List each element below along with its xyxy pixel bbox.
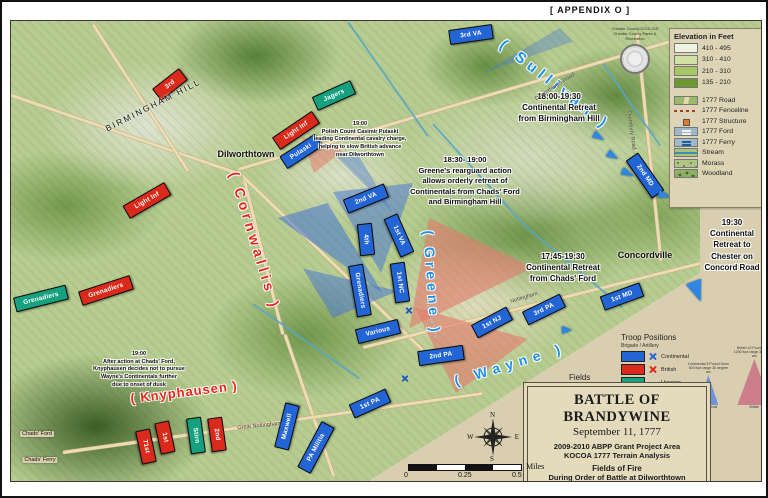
fire-triangle-label: British <box>733 405 762 409</box>
symbol-label: 1777 Road <box>702 97 735 104</box>
annotation-line: from Chads' Ford <box>503 273 623 284</box>
symbol-label: 1777 Ferry <box>702 139 735 146</box>
place-label: Chads' Ford <box>20 431 54 437</box>
map-theme: Fields of Fire <box>528 464 706 473</box>
map-annotation: 19:00Polish Count Casimir Pulaskileading… <box>300 121 420 159</box>
county-seal: Chester County DCIS-GIS Chester County P… <box>609 26 661 74</box>
fields-of-fire-legend-item: British 12 Pound Guns 1200 foot range 30… <box>733 346 762 409</box>
fence-swatch-icon <box>674 106 698 115</box>
annotation-line: due to onset of dusk <box>73 382 205 390</box>
scale-tick-label: 0.25 <box>458 472 472 479</box>
scale-bar-segments <box>408 464 522 471</box>
elevation-range-label: 135 - 210 <box>702 79 731 86</box>
elevation-range-label: 210 - 310 <box>702 68 731 75</box>
annotation-line: Continentals from Chads' Ford <box>390 187 540 198</box>
symbol-legend-row: 1777 Ford <box>674 127 762 136</box>
place-label: Concordville <box>618 250 673 260</box>
annotation-line: Wayne's Continentals further <box>73 374 205 382</box>
annotation-line: and Birmingham Hill <box>390 197 540 208</box>
appendix-header: [ APPENDIX O ] <box>550 5 630 15</box>
elevation-range-label: 310 - 410 <box>702 56 731 63</box>
symbols-legend: 1777 Road1777 Fenceline1777 Structure177… <box>674 96 762 179</box>
annotation-line: near Dilworthtown <box>300 152 420 160</box>
elevation-swatch <box>674 43 698 53</box>
symbol-label: Morass <box>702 160 724 167</box>
morass-swatch-icon <box>674 159 698 168</box>
annotation-line: Continental <box>696 228 762 239</box>
annotation-line: helping to slow British advance <box>300 144 420 152</box>
fire-triangle-icon <box>737 359 762 405</box>
map-annotation: 19:30ContinentalRetreat toChester onConc… <box>696 217 762 273</box>
annotation-line: Continental Retreat <box>503 262 623 273</box>
legend-title: Elevation in Feet <box>674 32 762 41</box>
ford-swatch-icon <box>674 127 698 136</box>
place-label: Dilworthtown <box>218 149 275 159</box>
annotation-line: Knyphausen decides not to pursue <box>73 366 205 374</box>
ferry-swatch-icon <box>674 138 698 147</box>
fields-of-fire-caption: Continental 3 Pound Guns 600 foot range … <box>687 362 729 374</box>
symbol-legend-row: 1777 Ferry <box>674 138 762 147</box>
symbol-label: 1777 Structure <box>702 118 747 125</box>
symbol-legend-row: Stream <box>674 148 762 157</box>
map-title-block: BATTLE OF BRANDYWINE September 11, 1777 … <box>527 386 707 482</box>
elevation-range-label: 410 - 495 <box>702 45 731 52</box>
fof-title-line: Fields <box>569 373 590 383</box>
elevation-swatch <box>674 55 698 65</box>
map-title: BATTLE OF BRANDYWINE <box>528 392 706 426</box>
seal-emblem-icon <box>620 44 650 74</box>
scale-bar-unit: Miles <box>526 462 544 471</box>
compass-star-icon <box>473 417 513 457</box>
map-theme-line: During Order of Battle at Dilworthtown <box>528 473 706 482</box>
woodland-swatch-icon <box>674 169 698 178</box>
project-line: 2009-2010 ABPP Grant Project Area <box>528 442 706 451</box>
map-annotation: 18:30- 19:00Greene's rearguard actionall… <box>390 155 540 208</box>
scale-tick-label: 0.5 <box>512 472 522 479</box>
symbol-legend-row: 1777 Structure <box>674 117 762 126</box>
symbol-label: Stream <box>702 149 724 156</box>
symbol-legend-row: Morass <box>674 159 762 168</box>
annotation-line: leading Continental cavalry charge, <box>300 136 420 144</box>
map-subtitle: September 11, 1777 <box>528 426 706 438</box>
elevation-legend-row: 410 - 495 <box>674 43 762 53</box>
compass-east: E <box>515 433 519 441</box>
map-annotation: 19:00After action at Chads' Ford,Knyphau… <box>73 351 205 389</box>
artillery-icon <box>405 306 414 314</box>
elevation-legend-row: 210 - 310 <box>674 66 762 76</box>
map-annotation: 17:45-19:30Continental Retreatfrom Chads… <box>503 251 623 285</box>
place-label: Chads' Ferry <box>22 457 57 463</box>
annotation-line: 19:00 <box>73 351 205 359</box>
annotation-line: allows orderly retreat of <box>390 176 540 187</box>
scale-tick-label: 0 <box>404 472 408 479</box>
project-line: KOCOA 1777 Terrain Analysis <box>528 451 706 460</box>
annotation-line: Retreat to <box>696 239 762 250</box>
elevation-legend-row: 310 - 410 <box>674 55 762 65</box>
elevation-legend-row: 135 - 210 <box>674 78 762 88</box>
symbol-label: 1777 Ford <box>702 128 733 135</box>
annotation-line: 18:00-19:30 <box>489 91 629 102</box>
annotation-line: Concord Road <box>696 262 762 273</box>
compass-rose: N S E W <box>469 413 517 461</box>
troop-legend-title: Troop Positions <box>621 333 733 342</box>
symbol-legend-row: Woodland <box>674 169 762 178</box>
map-legend-panel: Elevation in Feet 410 - 495310 - 410210 … <box>669 28 762 208</box>
symbol-label: Woodland <box>702 170 732 177</box>
symbol-label: 1777 Fenceline <box>702 107 748 114</box>
retreat-arrow-icon <box>562 326 572 334</box>
annotation-line: 17:45-19:30 <box>503 251 623 262</box>
stream-swatch-icon <box>674 148 698 157</box>
annotation-line: Chester on <box>696 251 762 262</box>
seal-text: Chester County Parks & Recreation <box>609 31 661 41</box>
annotation-line: 19:30 <box>696 217 762 228</box>
symbol-legend-row: 1777 Road <box>674 96 762 105</box>
scale-bar: 00.250.5 Miles <box>408 464 538 482</box>
annotation-line: 19:00 <box>300 121 420 129</box>
road-swatch-icon <box>674 96 698 105</box>
fields-of-fire-caption: British 12 Pound Guns 1200 foot range 30… <box>733 346 762 358</box>
elevation-legend: 410 - 495310 - 410210 - 310135 - 210 <box>674 43 762 88</box>
structure-swatch-icon <box>674 117 698 126</box>
map-sheet: [ APPENDIX O ] 3rd VAPulask <box>0 0 768 498</box>
battle-map: 3rd VAPulaski2nd VA1st VA4th1st NCGrenad… <box>10 20 762 482</box>
annotation-line: from Birmingham Hill <box>489 113 629 124</box>
elevation-swatch <box>674 78 698 88</box>
annotation-line: Greene's rearguard action <box>390 166 540 177</box>
map-annotation: 18:00-19:30Continental Retreatfrom Birmi… <box>489 91 629 125</box>
symbol-legend-row: 1777 Fenceline <box>674 106 762 115</box>
annotation-line: Continental Retreat <box>489 102 629 113</box>
elevation-swatch <box>674 66 698 76</box>
artillery-icon <box>401 374 410 382</box>
